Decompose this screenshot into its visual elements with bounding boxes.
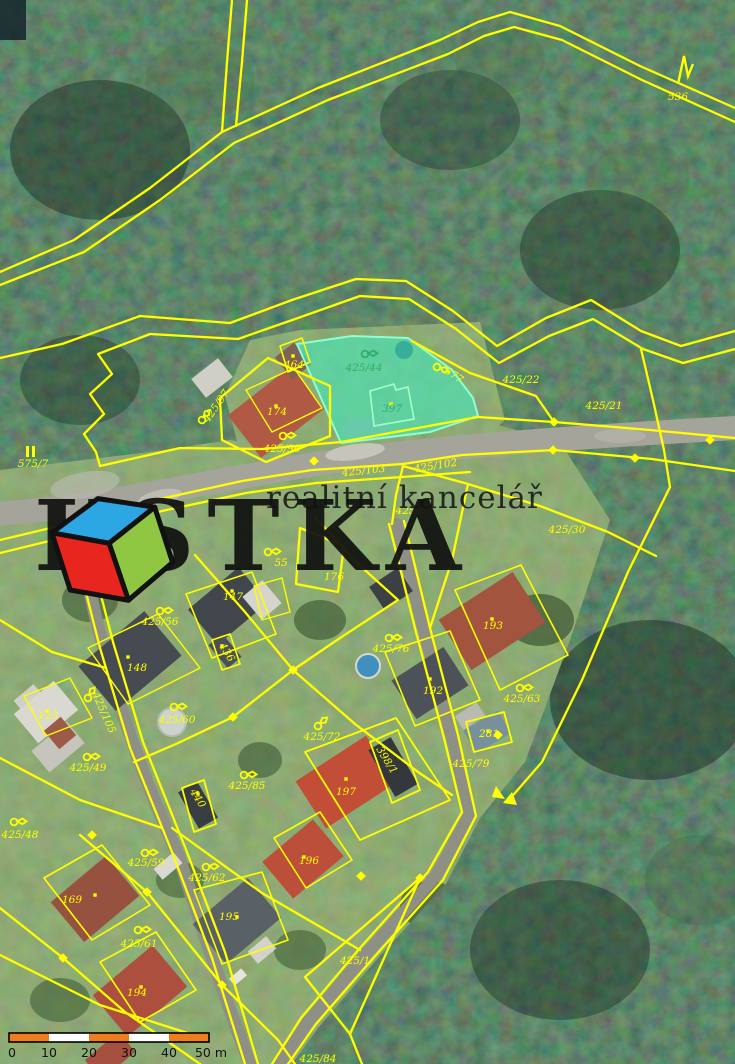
parcel-label: 536 [668,91,688,103]
kostka-cube-icon [36,490,186,612]
parcel-label: 425/76 [372,643,410,655]
parcel-label: 425/48 [1,829,39,841]
scale-tick-label: 50 m [195,1045,227,1060]
parcel-label: 123 [38,710,58,722]
parcel-label: 425/56 [141,616,179,628]
parcel-label: 425/60 [158,714,196,726]
cadastral-map-viewport[interactable]: 536575/7425/22425/21677425/97464174425/9… [0,0,735,1064]
parcel-label: 425/63 [503,693,541,705]
parcel-label: 194 [127,987,147,999]
parcel-label: 425/62 [188,872,226,884]
scale-tick-label: 0 [8,1045,16,1060]
parcel-label: 397 [382,403,402,415]
parcel-label: 425/44 [345,362,383,374]
scale-segment [9,1033,49,1042]
parcel-label: 425/96 [263,443,301,455]
scale-tick-label: 40 [161,1045,177,1060]
parcel-label: 425/1 [339,955,370,967]
parcel-label: 197 [336,786,356,798]
parcel-label: 195 [219,911,239,923]
parcel-label: 196 [299,855,319,867]
parcel-label: 425/79 [452,758,490,770]
parcel-label: 425/84 [299,1053,337,1064]
parcel-label: 169 [62,894,82,906]
watermark-brand-logo: K STKA [34,488,474,585]
parcel-label: 281 [478,728,499,740]
scale-segment [129,1033,169,1042]
scale-tick-label: 20 [81,1045,97,1060]
parcel-label: 464 [283,359,304,371]
pool [356,654,380,678]
parcel-label: 148 [127,662,147,674]
parcel-label: 425/49 [69,762,107,774]
parcel-label: 425/59 [127,857,165,869]
parcel-label: 425/22 [502,374,540,386]
scale-tick-label: 30 [121,1045,137,1060]
scale-segment [169,1033,209,1042]
parcel-label: 174 [267,406,287,418]
parcel-label: 192 [423,685,443,697]
parcel-label: 425/85 [228,780,266,792]
parcel-label: 425/72 [303,731,341,743]
parcel-label: 425/21 [585,400,623,412]
parcel-label: 425/61 [120,938,158,950]
scale-segment [89,1033,129,1042]
scale-segment [49,1033,89,1042]
parcel-label: 193 [483,620,503,632]
scale-tick-label: 10 [41,1045,57,1060]
parcel-label: 575/7 [18,458,49,470]
parcel-label: 425/30 [548,524,586,536]
